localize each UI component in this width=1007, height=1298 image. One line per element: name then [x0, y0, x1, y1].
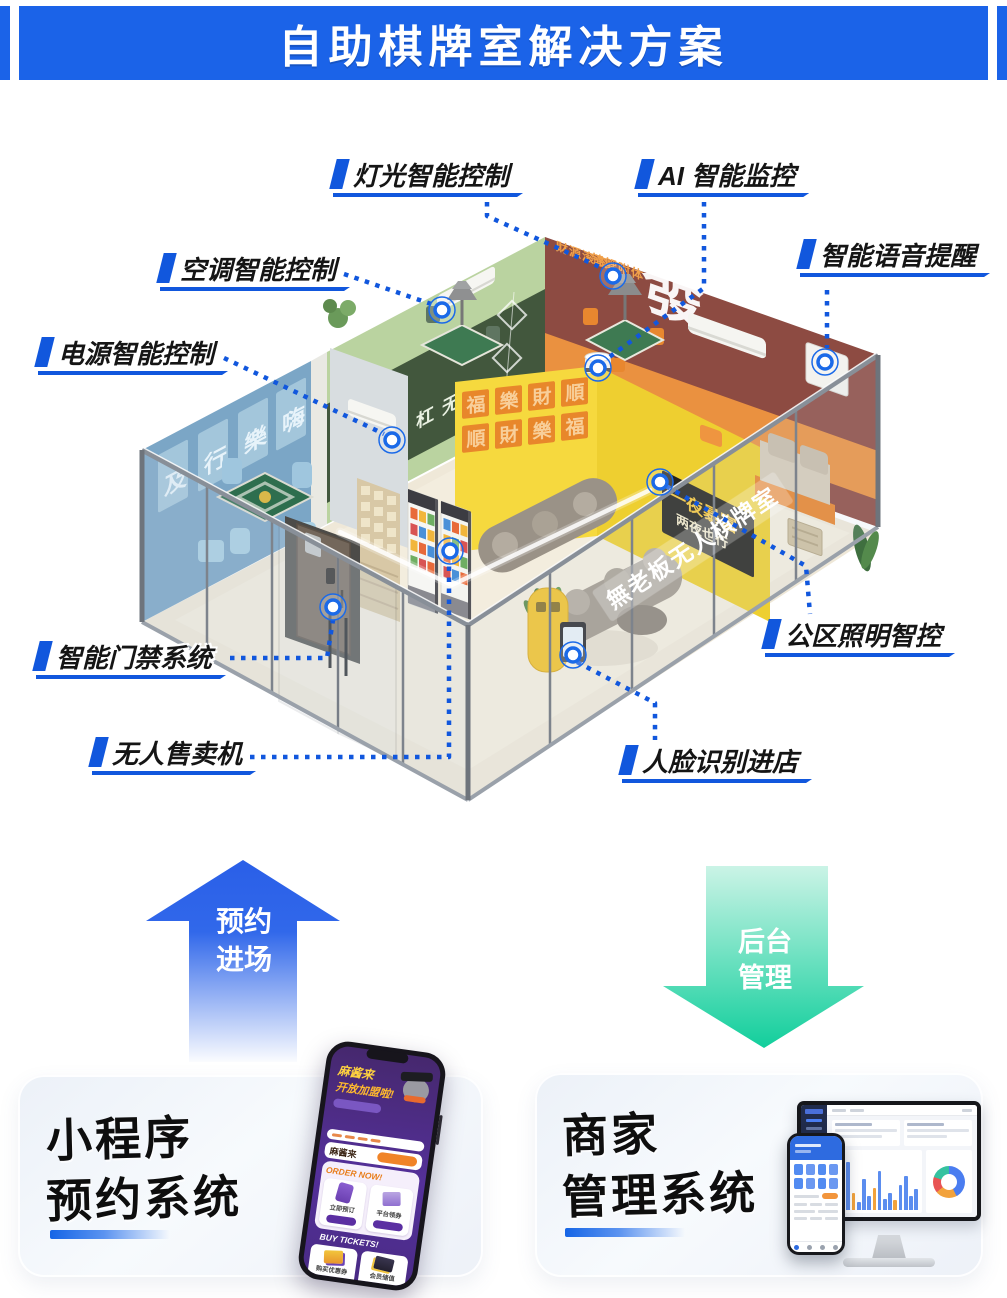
admin-phone-row: [790, 1215, 842, 1222]
marker-ai: [585, 355, 611, 381]
app-brand-button[interactable]: [377, 1152, 418, 1167]
app-item-member[interactable]: 会员储值: [356, 1250, 408, 1287]
app-banner-pill: [333, 1098, 382, 1114]
poster-char: 財: [533, 384, 552, 409]
app-order-section: ORDER NOW! 立即预订 平台领券: [314, 1160, 421, 1241]
app-item-book[interactable]: 立即预订: [318, 1178, 367, 1231]
marker-ac: [429, 297, 455, 323]
plant-back: [323, 299, 356, 328]
poster-char: 福: [466, 392, 486, 417]
card-right-title-line2: 管理系统: [561, 1156, 759, 1227]
app-item-button[interactable]: [372, 1220, 403, 1232]
coupon-icon: [382, 1192, 400, 1206]
dashboard-logo: [805, 1109, 823, 1114]
marker-face: [560, 642, 586, 668]
flow-arrow-down: 后台 管理: [663, 866, 864, 1048]
poster-page: { "header": { "title": "自助棋牌室解决方案" }, "c…: [0, 0, 1007, 1298]
admin-phone-header: [790, 1136, 842, 1160]
ticket-cards-icon: [324, 1250, 343, 1264]
app-item-button[interactable]: [325, 1214, 356, 1226]
admin-phone-mockup: [787, 1133, 845, 1255]
cat-mascot: [397, 1068, 435, 1104]
dashboard-stat-panel: [904, 1120, 972, 1146]
dashboard-topbar: [827, 1105, 977, 1116]
monitor-base: [843, 1258, 935, 1267]
poster-char: 順: [566, 381, 586, 405]
marker-door: [320, 594, 346, 620]
admin-phone-row: [790, 1201, 842, 1208]
admin-action-button[interactable]: [822, 1193, 838, 1199]
card-left-title-line1: 小程序: [45, 1101, 194, 1171]
admin-phone-icon-grid: [790, 1160, 842, 1191]
admin-phone-screen: [790, 1136, 842, 1252]
app-item-coupon[interactable]: 平台领券: [365, 1184, 414, 1237]
wall-divider-sliver: [311, 352, 327, 533]
dashboard-main: [827, 1105, 977, 1217]
flow-up-text-2: 进场: [216, 944, 272, 975]
app-item-buy-coupon[interactable]: 购买优惠券: [306, 1243, 358, 1287]
flow-up-text-1: 预约: [216, 906, 272, 937]
poster-char: 樂: [500, 388, 520, 413]
app-item-button[interactable]: [315, 1275, 346, 1287]
app-tickets-section: BUY TICKETS! 购买优惠券 会员储值: [306, 1230, 411, 1287]
app-item-label: 会员储值: [362, 1270, 402, 1284]
card-right-title-line1: 商家: [561, 1098, 661, 1167]
poster-char: 樂: [533, 418, 553, 443]
admin-phone-row: [790, 1208, 842, 1215]
flow-arrow-up: 预约 进场: [146, 860, 340, 1062]
admin-phone-tabbar: [790, 1241, 842, 1252]
dashboard-bar-chart: [832, 1150, 922, 1213]
poster-char: 財: [500, 422, 519, 447]
flow-down-text-1: 后台: [738, 926, 792, 957]
marker-power: [379, 427, 405, 453]
marker-light: [600, 263, 626, 289]
admin-phone-row: [790, 1191, 842, 1201]
dashboard-donut-chart: [926, 1150, 972, 1213]
flow-down-text-2: 管理: [738, 963, 792, 993]
isometric-room-illustration: 及 行 樂 嗨 吃搓碰杠无 财源滚滚 锦鲤附体 發: [0, 0, 1007, 1070]
booking-icon: [335, 1182, 355, 1204]
marker-vending: [437, 538, 463, 564]
marker-publight: [647, 469, 673, 495]
poster-char: 福: [565, 414, 585, 439]
card-left-title-line2: 预约系统: [45, 1160, 243, 1231]
cat-hat: [401, 1072, 433, 1082]
member-card-icon: [373, 1256, 395, 1273]
card-left-accent-bar: [50, 1230, 170, 1239]
app-brand-name: 麻酱来: [329, 1144, 358, 1161]
poster-char: 順: [467, 427, 487, 451]
app-item-label: 购买优惠券: [312, 1263, 352, 1277]
marker-voice: [812, 349, 838, 375]
card-right-accent-bar: [565, 1228, 685, 1237]
